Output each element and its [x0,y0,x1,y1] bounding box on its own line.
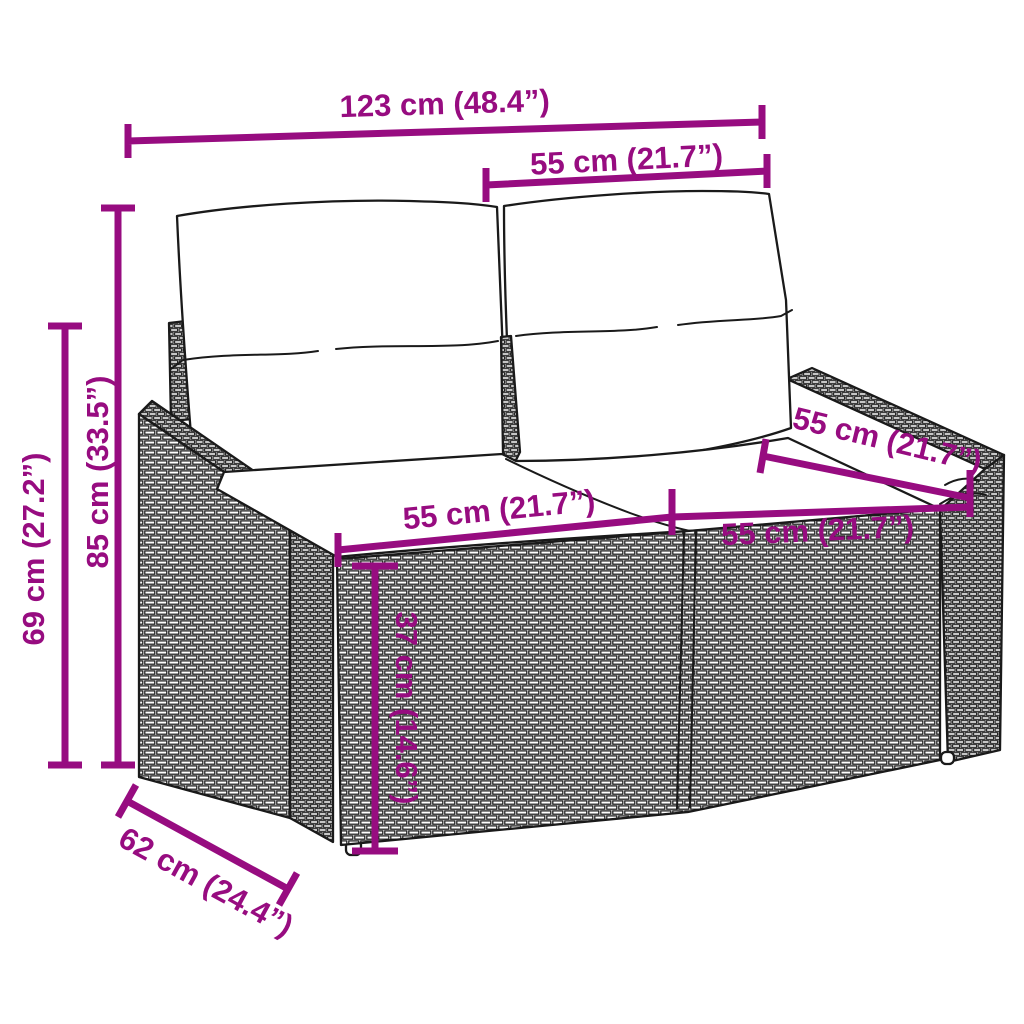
dim-armrest-height-line [48,326,82,765]
dim-seat-height-label: 37 cm (14.6”) [389,612,424,805]
dim-overall-width-label: 123 cm (48.4”) [339,83,550,124]
seat-front-panel [337,509,940,845]
dim-armrest-height-label: 69 cm (27.2”) [16,453,51,646]
dim-total-height: 85 cm (33.5”) [80,208,135,765]
sofa-foot [941,752,954,764]
dim-armrest-height: 69 cm (27.2”) [16,326,82,765]
dimension-diagram: 123 cm (48.4”) 55 cm (21.7”) 85 cm (33.5… [0,0,1024,1024]
left-armrest-front [290,517,333,842]
product-dimension-drawing: 123 cm (48.4”) 55 cm (21.7”) 85 cm (33.5… [0,0,1024,1024]
dim-total-height-label: 85 cm (33.5”) [80,376,115,569]
